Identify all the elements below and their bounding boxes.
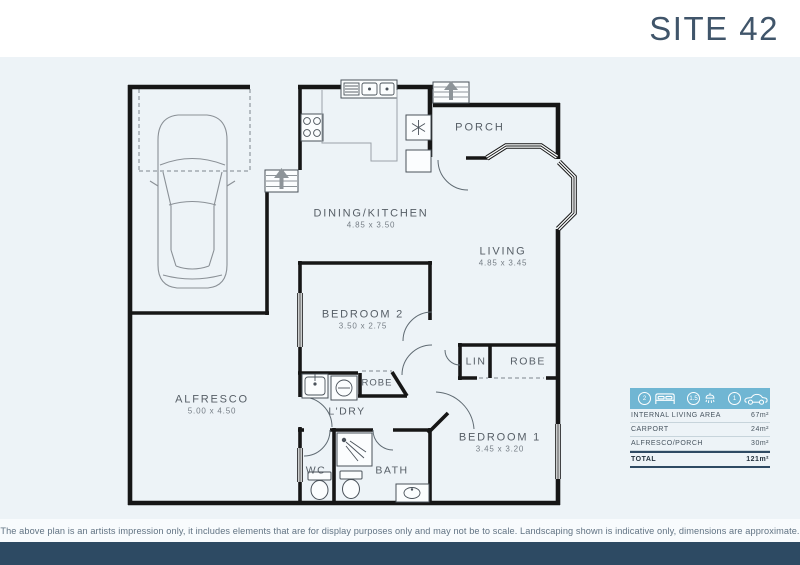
row-label: ALFRESCO/PORCH xyxy=(631,440,703,447)
disclaimer-text: The above plan is an artists impression … xyxy=(0,526,799,536)
bedroom-count: 2 xyxy=(638,392,651,405)
car-icon xyxy=(744,392,768,405)
summary-row-internal: INTERNAL LIVING AREA 67m² xyxy=(630,409,770,423)
kitchen-counter-line xyxy=(322,90,397,161)
bathroom-count: 1.5 xyxy=(687,392,700,405)
footer-bar xyxy=(0,542,800,565)
shower-icon xyxy=(703,392,717,406)
bedrooms-badge: 2 xyxy=(638,392,676,405)
row-value: 30m² xyxy=(751,440,769,447)
laundry-tub xyxy=(302,374,328,398)
disclaimer-strip: The above plan is an artists impression … xyxy=(0,519,800,542)
toilet-wc xyxy=(308,472,331,500)
row-label: CARPORT xyxy=(631,426,669,433)
summary-row-total: TOTAL 121m² xyxy=(630,451,770,468)
bathrooms-badge: 1.5 xyxy=(687,392,717,406)
carport-entry-arrow-icon xyxy=(265,168,298,192)
shower xyxy=(337,433,372,466)
fridge-icon xyxy=(406,115,431,140)
summary-row-alfresco-porch: ALFRESCO/PORCH 30m² xyxy=(630,437,770,451)
door-swing-arcs xyxy=(302,160,474,456)
kitchen-sink xyxy=(341,80,397,98)
summary-header: 2 1.5 1 xyxy=(630,388,770,409)
floorplan-drawing xyxy=(0,0,800,565)
row-value: 24m² xyxy=(751,426,769,433)
floorplan-page: SITE 42 xyxy=(0,0,800,565)
area-summary-table: 2 1.5 1 xyxy=(630,388,770,468)
bed-icon xyxy=(654,392,676,405)
row-label: INTERNAL LIVING AREA xyxy=(631,412,721,419)
car-topview-icon xyxy=(150,115,235,288)
car-count: 1 xyxy=(728,392,741,405)
vanity-basin xyxy=(396,484,429,502)
porch-entry-arrow-icon xyxy=(433,81,469,103)
pantry-cabinet xyxy=(406,150,431,172)
sliding-doors xyxy=(362,371,544,378)
toilet-bath xyxy=(340,471,362,499)
summary-row-carport: CARPORT 24m² xyxy=(630,423,770,437)
washing-machine xyxy=(331,376,357,400)
total-label: TOTAL xyxy=(631,456,656,463)
cooktop xyxy=(301,114,323,141)
total-value: 121m² xyxy=(746,456,769,463)
row-value: 67m² xyxy=(751,412,769,419)
carspaces-badge: 1 xyxy=(728,392,768,405)
